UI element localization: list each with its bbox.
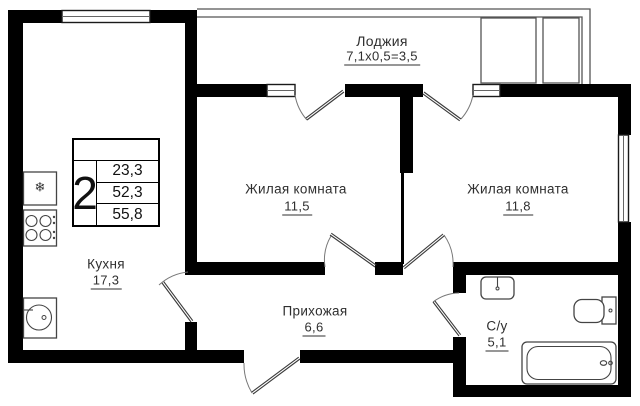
room1-hall-door xyxy=(324,233,376,267)
room1-balcony-window xyxy=(267,85,295,97)
toilet xyxy=(574,297,616,324)
room2-balcony-door xyxy=(423,92,473,121)
kitchen-window xyxy=(62,11,150,23)
room2-hall-door xyxy=(403,234,453,269)
bathroom-label: С/у xyxy=(486,319,507,334)
floor-plan: Лоджия 7,1х0,5=3,5 Жилая комната 11,5 Жи… xyxy=(0,0,640,406)
bathtub xyxy=(522,342,616,384)
snowflake-icon: ❄ xyxy=(35,181,46,196)
loggia-label: Лоджия xyxy=(356,33,407,49)
loggia-glazing-panel xyxy=(543,18,579,83)
room2-label: Жилая комната xyxy=(467,182,568,197)
kitchen-door xyxy=(159,272,193,322)
room1-area: 11,5 xyxy=(282,199,312,216)
loggia-dims: 7,1х0,5=3,5 xyxy=(344,49,420,66)
bathroom-door xyxy=(433,293,461,336)
room2-balcony-window xyxy=(473,85,500,97)
rooms-count: 2 xyxy=(74,161,96,225)
bathroom-area: 5,1 xyxy=(486,335,509,352)
hallway-area: 6,6 xyxy=(303,320,326,337)
living-area-value: 23,3 xyxy=(97,161,158,182)
room1-label: Жилая комната xyxy=(245,182,346,197)
room2-area: 11,8 xyxy=(503,199,533,216)
room2-side-window xyxy=(619,135,629,222)
stove xyxy=(24,210,57,246)
bathroom-sink xyxy=(481,277,514,299)
apartment-info-badge: 2 23,3 52,3 55,8 xyxy=(72,138,160,227)
loggia-glazing-panel xyxy=(481,18,536,83)
kitchen-sink xyxy=(24,298,57,338)
entrance-door xyxy=(244,357,300,394)
kitchen-label: Кухня xyxy=(87,257,125,272)
badge-empty-row xyxy=(74,140,158,161)
hallway-label: Прихожая xyxy=(283,304,348,319)
room1-balcony-door xyxy=(295,90,344,120)
kitchen-area: 17,3 xyxy=(91,273,122,290)
area-without-loggia-value: 52,3 xyxy=(97,182,158,204)
total-area-value: 55,8 xyxy=(97,203,158,225)
